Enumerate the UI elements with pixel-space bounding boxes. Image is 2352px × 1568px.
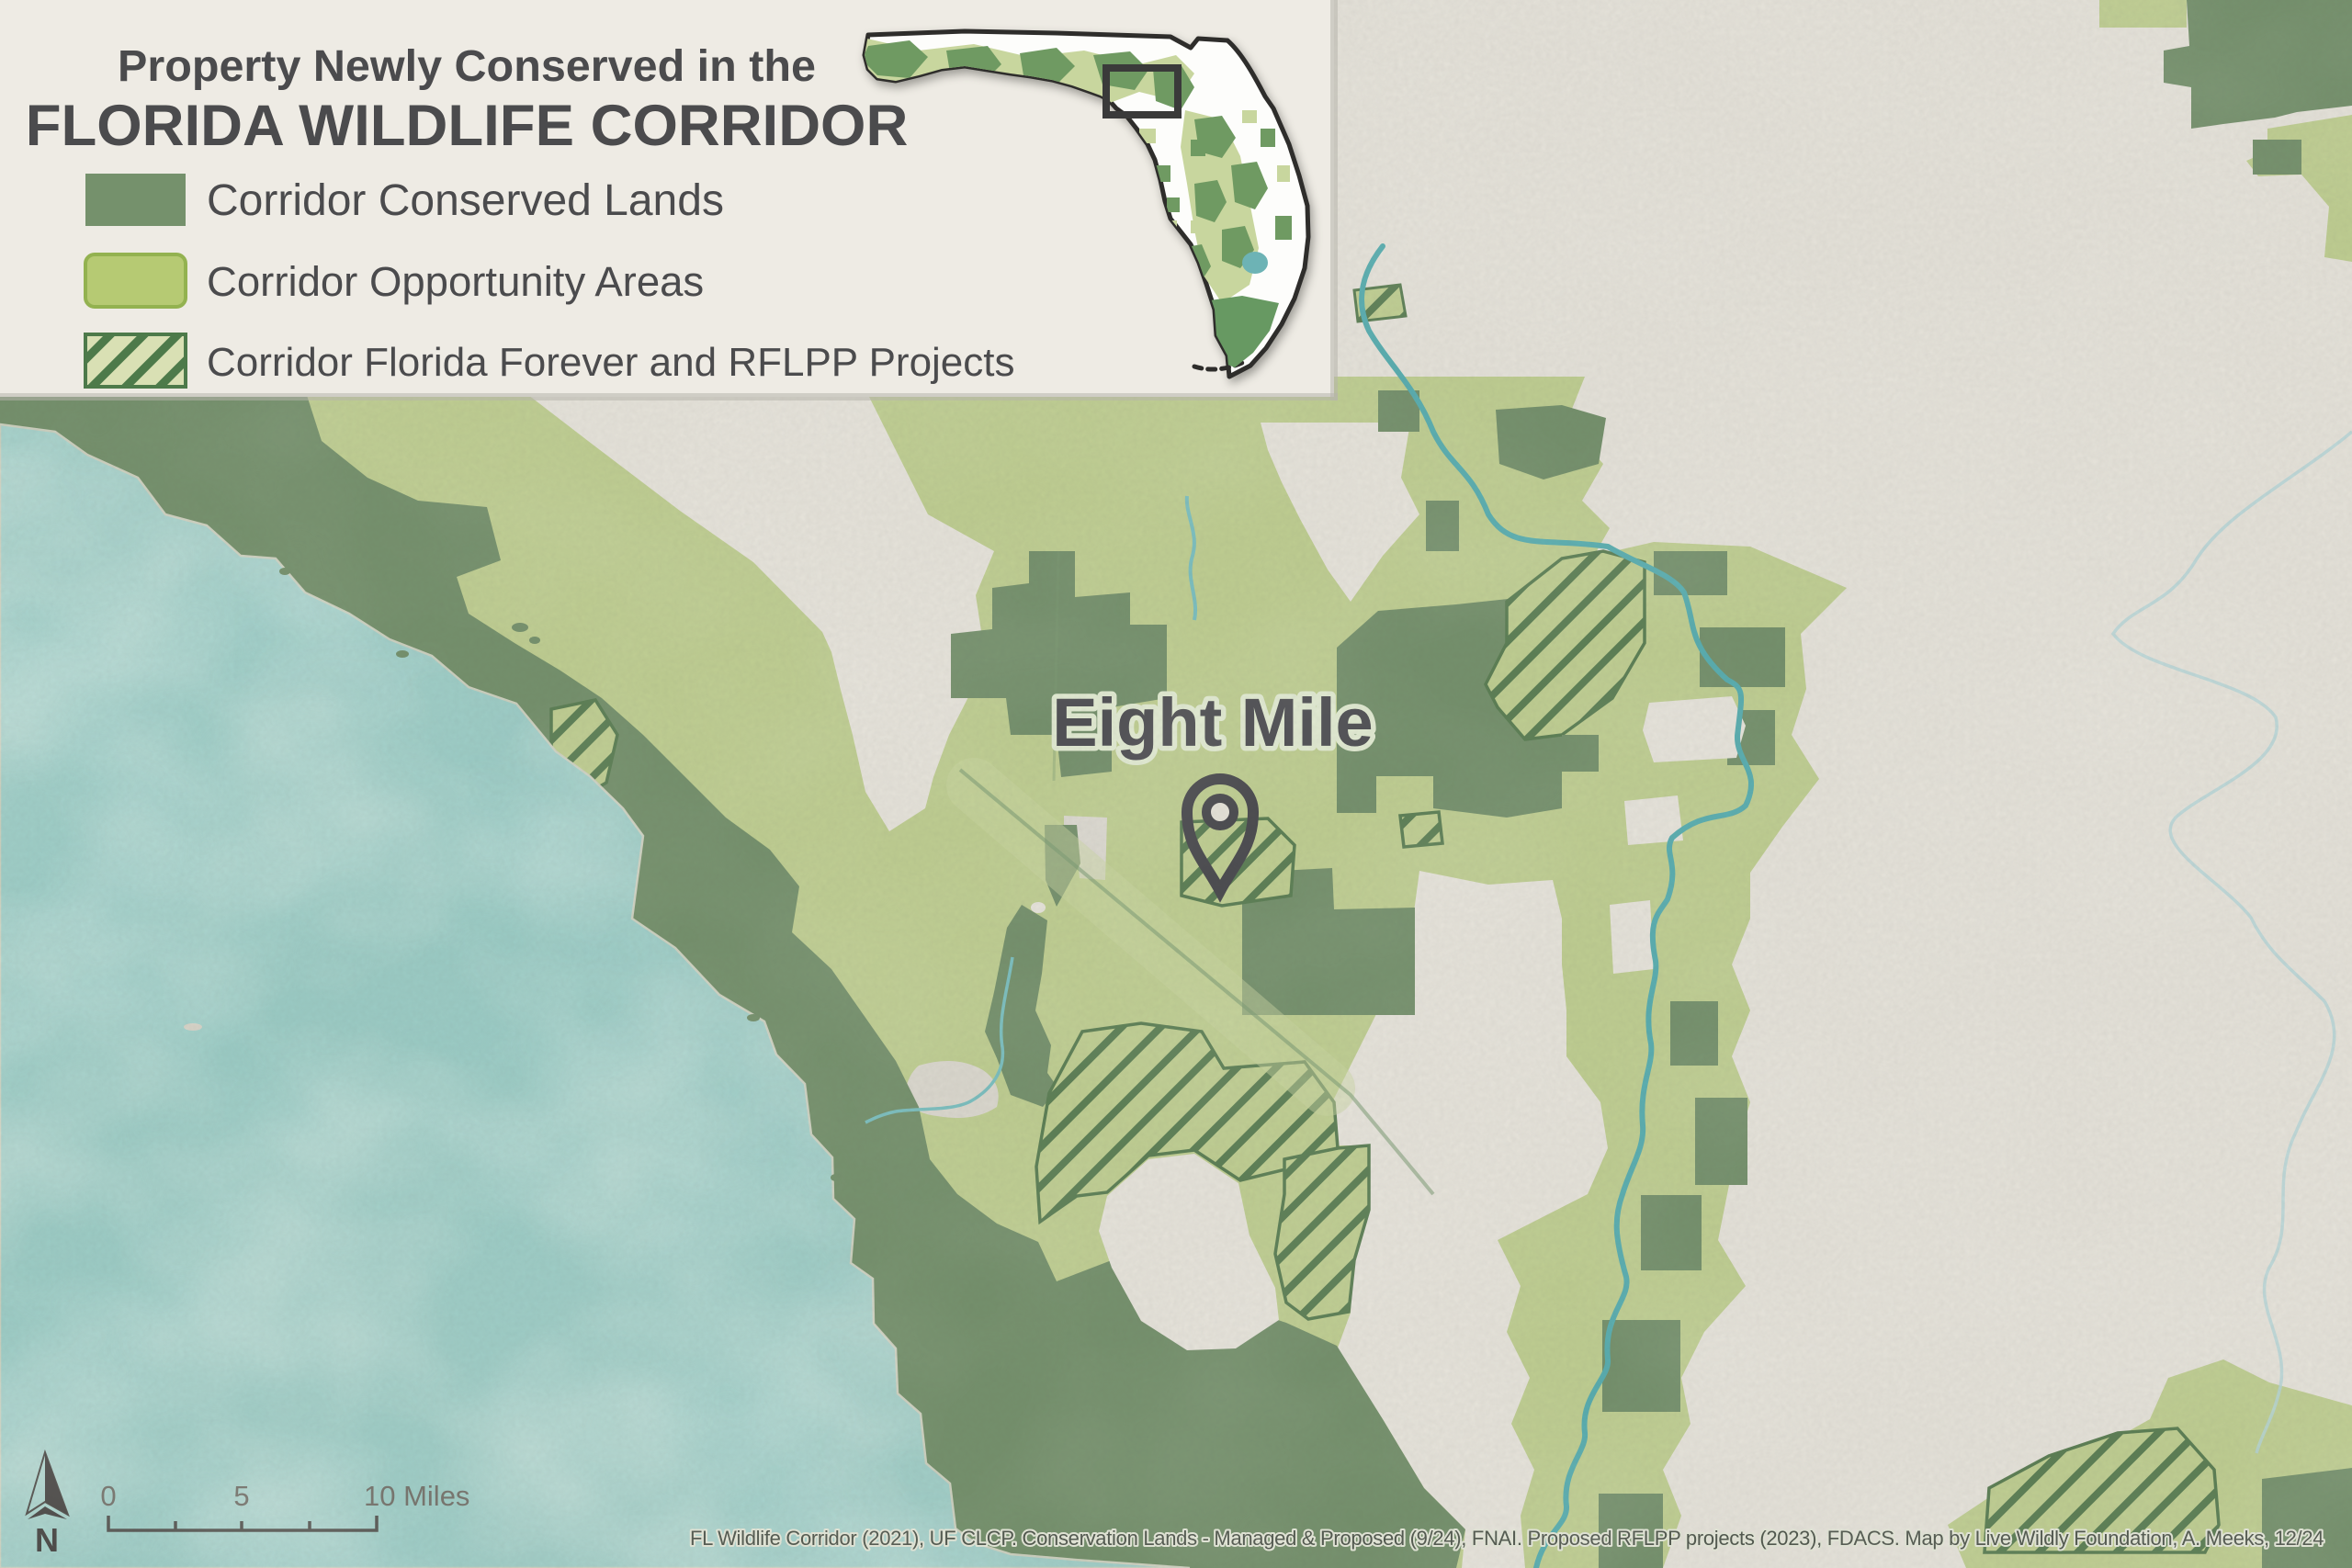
- svg-text:FLORIDA WILDLIFE CORRIDOR: FLORIDA WILDLIFE CORRIDOR: [26, 94, 909, 158]
- svg-text:Corridor Florida Forever and R: Corridor Florida Forever and RFLPP Proje…: [207, 340, 1015, 385]
- svg-text:Property Newly Conserved in th: Property Newly Conserved in the: [118, 41, 816, 91]
- svg-text:Corridor Conserved Lands: Corridor Conserved Lands: [207, 176, 724, 225]
- svg-text:Corridor Opportunity Areas: Corridor Opportunity Areas: [207, 258, 704, 305]
